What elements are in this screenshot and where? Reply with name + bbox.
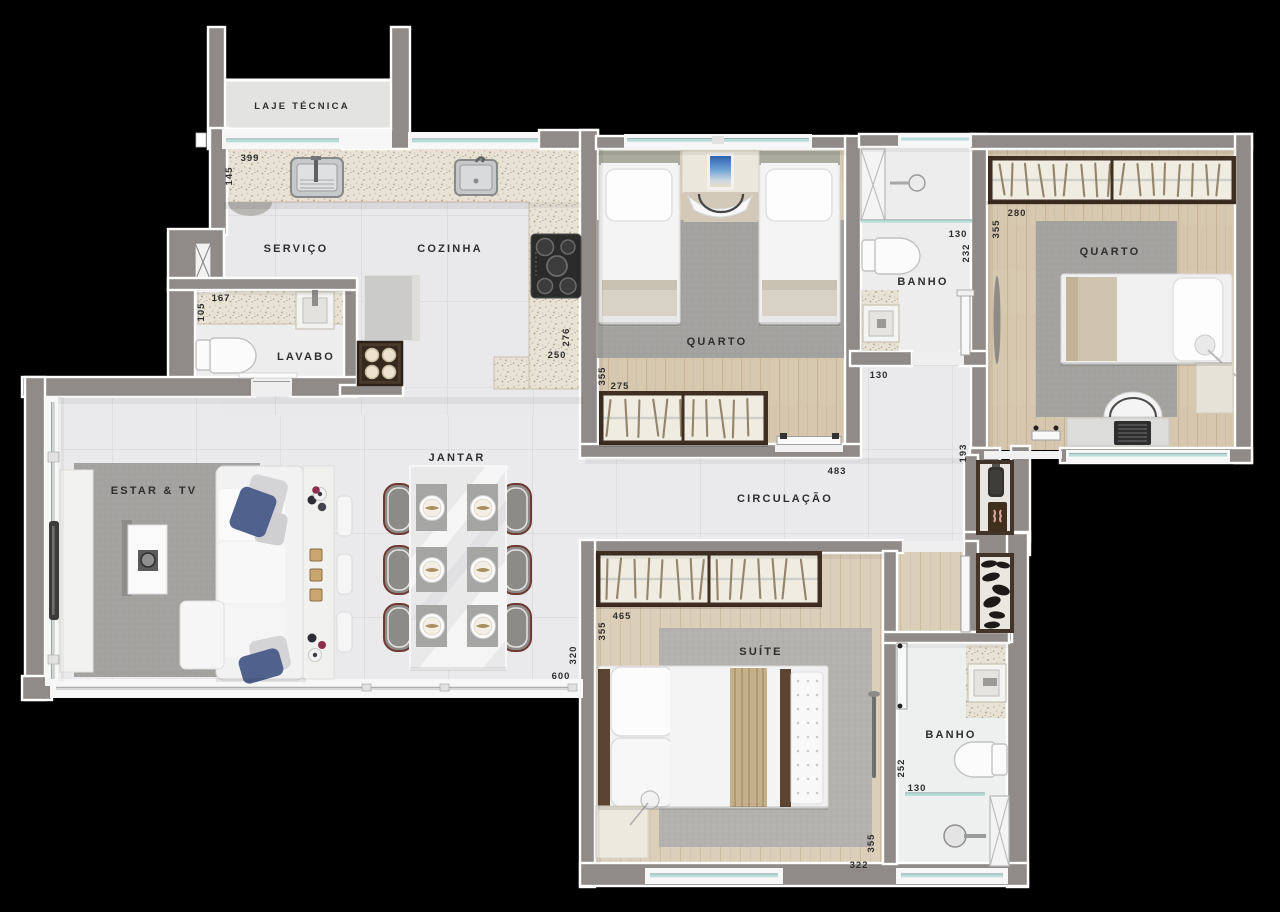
svg-text:BANHO: BANHO — [897, 276, 948, 288]
svg-text:QUARTO: QUARTO — [1080, 246, 1141, 258]
svg-text:322: 322 — [850, 860, 869, 871]
svg-text:355: 355 — [991, 220, 1002, 239]
svg-text:355: 355 — [597, 622, 608, 641]
svg-text:LAVABO: LAVABO — [277, 351, 335, 363]
svg-text:145: 145 — [224, 167, 235, 186]
svg-text:JANTAR: JANTAR — [429, 452, 486, 464]
svg-text:320: 320 — [568, 646, 579, 665]
svg-text:465: 465 — [613, 611, 632, 622]
svg-text:252: 252 — [896, 759, 907, 778]
svg-text:ESTAR & TV: ESTAR & TV — [111, 485, 198, 497]
svg-text:130: 130 — [949, 229, 968, 240]
svg-text:600: 600 — [552, 671, 571, 682]
svg-text:355: 355 — [866, 834, 877, 853]
svg-text:LAJE TÉCNICA: LAJE TÉCNICA — [254, 101, 350, 112]
svg-text:355: 355 — [597, 367, 608, 386]
svg-text:280: 280 — [1008, 208, 1027, 219]
svg-text:105: 105 — [196, 303, 207, 322]
svg-text:SUÍTE: SUÍTE — [739, 645, 782, 658]
svg-text:232: 232 — [961, 244, 972, 263]
svg-text:COZINHA: COZINHA — [417, 243, 483, 255]
svg-text:SERVIÇO: SERVIÇO — [264, 243, 329, 255]
svg-text:193: 193 — [958, 444, 969, 463]
svg-text:276: 276 — [561, 328, 572, 347]
svg-text:QUARTO: QUARTO — [687, 336, 748, 348]
svg-text:130: 130 — [870, 370, 889, 381]
svg-text:399: 399 — [241, 153, 260, 164]
svg-text:BANHO: BANHO — [925, 729, 976, 741]
svg-text:275: 275 — [611, 381, 630, 392]
svg-text:250: 250 — [548, 350, 567, 361]
svg-text:167: 167 — [212, 293, 231, 304]
svg-text:130: 130 — [908, 783, 927, 794]
svg-text:483: 483 — [828, 466, 847, 477]
svg-text:CIRCULAÇÃO: CIRCULAÇÃO — [737, 492, 833, 505]
